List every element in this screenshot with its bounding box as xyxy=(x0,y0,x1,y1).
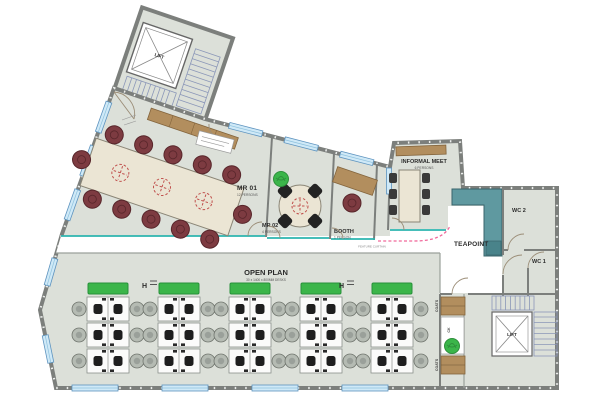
chair xyxy=(422,189,430,199)
informal-meet-capacity: 6 PERSONS xyxy=(415,166,435,170)
coats-lower-label: COATS xyxy=(435,358,439,371)
chair xyxy=(422,205,430,215)
mr01-label: MR 01 xyxy=(237,185,257,192)
wc2-label: WC 2 xyxy=(512,208,526,214)
teapoint-label: TEAPOINT xyxy=(454,241,488,248)
open-plan-label: OPEN PLAN xyxy=(244,268,288,277)
chair xyxy=(389,205,397,215)
cloak-label: CK xyxy=(447,327,451,333)
heater-right-label: H xyxy=(339,283,344,290)
mr01-capacity: 12 PERSONS xyxy=(237,193,259,197)
informal-meet-label: INFORMAL MEET xyxy=(401,159,447,165)
open-plan: OPEN PLAN 30 x 1400 x 800MM DESKS H H xyxy=(72,268,428,373)
open-plan-subtitle: 30 x 1400 x 800MM DESKS xyxy=(246,278,286,282)
chair xyxy=(422,173,430,183)
wc1-label: WC 1 xyxy=(532,259,546,265)
coats-upper-label: COATS xyxy=(435,299,439,312)
chair xyxy=(389,189,397,199)
heater-left-label: H xyxy=(142,283,147,290)
chair xyxy=(343,194,361,212)
shelf xyxy=(396,145,446,156)
lift-lower-label: LIFT xyxy=(507,332,517,337)
booth-label: BOOTH xyxy=(334,229,354,235)
plant-icon xyxy=(445,339,460,354)
floor-plan: LIFT xyxy=(0,0,600,400)
plant-icon xyxy=(274,172,289,187)
informal-table xyxy=(399,170,420,222)
feature-curtain-label: FEATURE CURTAIN xyxy=(358,245,386,249)
floor-plan-svg: LIFT xyxy=(0,0,600,400)
chair xyxy=(389,173,397,183)
